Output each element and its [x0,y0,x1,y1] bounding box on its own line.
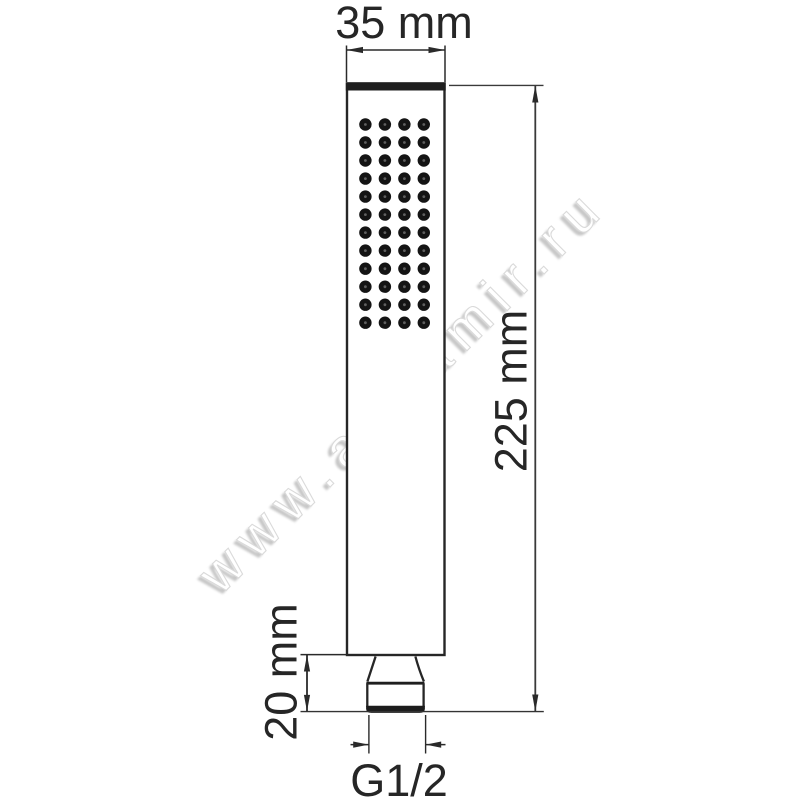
svg-text:G1/2: G1/2 [350,755,448,800]
svg-text:35 mm: 35 mm [335,0,473,48]
svg-text:225 mm: 225 mm [486,310,537,473]
svg-text:20 mm: 20 mm [256,603,307,741]
